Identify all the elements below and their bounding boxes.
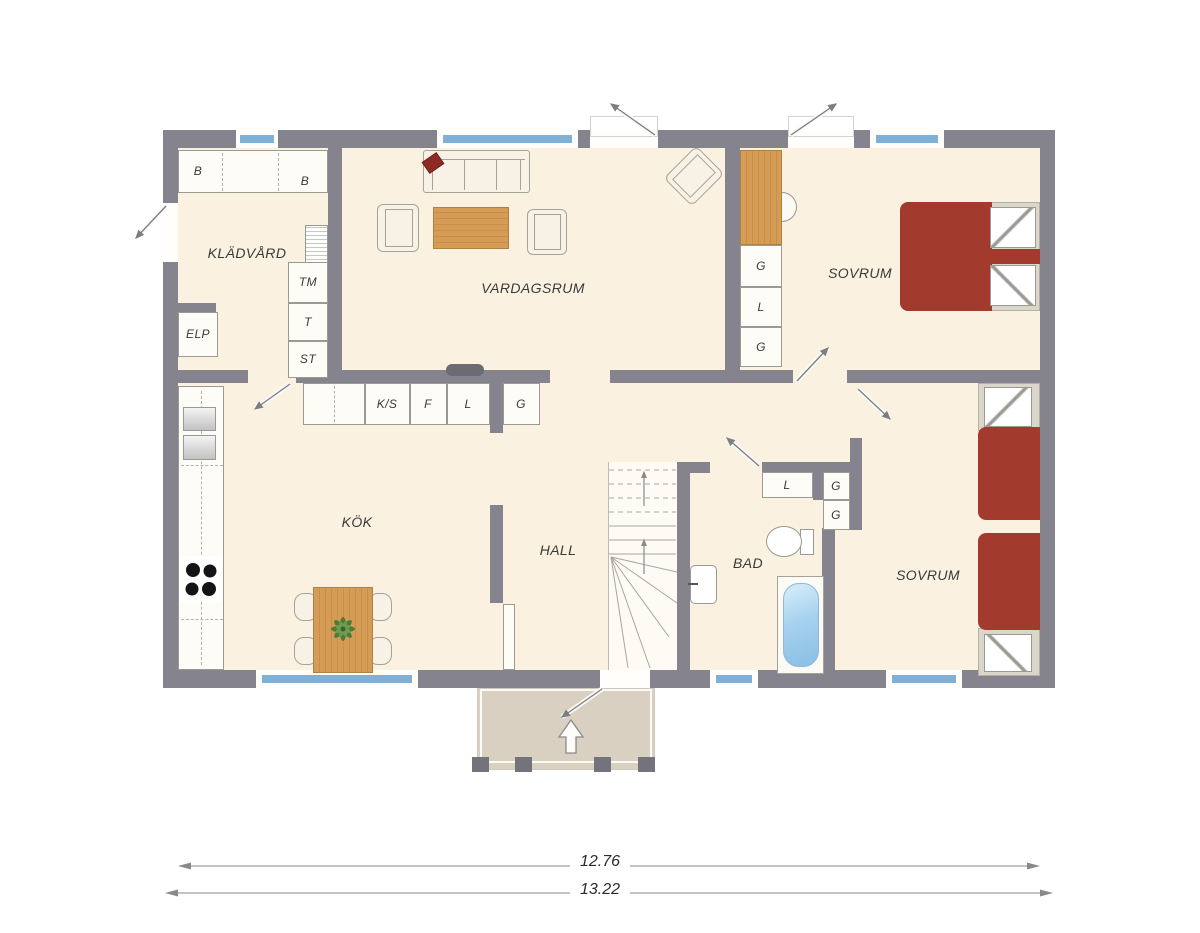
room-label-vardagsrum: VARDAGSRUM (481, 280, 585, 296)
counter-centerline (201, 391, 202, 665)
armchair (527, 209, 567, 255)
stove (180, 556, 222, 602)
toilet-tank (800, 529, 814, 555)
closet-label-l-bad: L (783, 478, 790, 492)
wall-elp-top (178, 303, 216, 312)
dining-table (313, 587, 373, 673)
bed-blanket (978, 533, 1040, 630)
porch-post (472, 757, 489, 772)
room-label-hall: HALL (540, 542, 577, 558)
tv-bench (446, 364, 484, 376)
toilet-bowl (766, 526, 802, 557)
room-label-kok: KÖK (342, 514, 373, 530)
staircase (608, 462, 677, 670)
cabinet-kitchen-plain (303, 383, 365, 425)
room-label-sovrum1: SOVRUM (828, 265, 892, 281)
closet-label-l-kok: L (464, 397, 471, 411)
kitchen-door-leaf (503, 604, 515, 670)
bathtub-water (783, 583, 819, 667)
coffee-table (433, 207, 509, 249)
window-glass (443, 135, 572, 143)
porch-post (594, 757, 611, 772)
closet-label-st: ST (300, 352, 316, 366)
window-glass (262, 675, 412, 683)
sofa-cushion-divider (496, 159, 497, 190)
closet-label-tm: TM (299, 275, 317, 289)
counter-divider (181, 465, 223, 466)
sink (690, 565, 717, 604)
dimension-inner-width: 12.76 (570, 853, 630, 871)
side-door-swing (136, 206, 166, 238)
closet-label-l1: L (757, 300, 764, 314)
wardrobe-wood (740, 150, 782, 245)
window-glass (892, 675, 956, 683)
closet-label-elp: ELP (186, 327, 210, 341)
armchair-seat (385, 209, 413, 247)
bed-pillow (984, 387, 1032, 427)
window-vardagsrum (437, 130, 578, 148)
counter-divider (181, 619, 223, 620)
closet-label-t: T (304, 315, 312, 329)
window-kladvard (236, 130, 278, 148)
wall-h-sovrum1 (847, 370, 1040, 383)
bed-pillow (984, 634, 1032, 672)
wall-stairs-bad (677, 462, 690, 670)
bed-blanket-stripe (984, 249, 1040, 264)
closet-label-f: F (424, 397, 432, 411)
closet-label-g-bad1: G (831, 479, 841, 493)
patio-door-frame-2 (788, 116, 854, 137)
window-glass (716, 675, 752, 683)
armchair (377, 204, 419, 252)
cabinet-divider (222, 153, 223, 191)
single-bed (978, 383, 1040, 520)
wall-kok-hall-top (490, 383, 503, 433)
closet-label-b2: B (301, 174, 309, 188)
wall-kladvard-right (328, 148, 342, 383)
side-door-opening (163, 203, 178, 262)
wall-outer-right (1040, 130, 1055, 688)
armchair-seat (534, 214, 561, 250)
bed-pillow (990, 265, 1036, 306)
wall-l-g-divider (813, 462, 823, 500)
window-glass (876, 135, 938, 143)
sofa-cushion-divider (464, 159, 465, 190)
entry-door-opening (600, 670, 650, 688)
sofa-backrest (428, 159, 525, 160)
closet-label-g-kok: G (516, 397, 526, 411)
porch-inner-border (480, 689, 652, 763)
room-label-kladvard: KLÄDVÅRD (208, 245, 287, 261)
sofa-armrests (432, 159, 521, 190)
floor-plan: KLÄDVÅRD VARDAGSRUM SOVRUM KÖK HALL BAD … (0, 0, 1200, 933)
closet-label-g-bad2: G (831, 508, 841, 522)
double-bed (900, 202, 1040, 311)
closet-label-g2: G (756, 340, 766, 354)
bathtub (777, 576, 824, 674)
closet-label-g1: G (756, 259, 766, 273)
porch-post (515, 757, 532, 772)
single-bed (978, 533, 1040, 676)
wall-h-corridor (610, 370, 793, 383)
wall-h-kladvard (178, 370, 248, 383)
room-label-sovrum2: SOVRUM (896, 567, 960, 583)
closet-label-ks: K/S (377, 397, 398, 411)
dimension-outer-width: 13.22 (570, 881, 630, 899)
window-glass (240, 135, 274, 143)
fridge (183, 407, 216, 431)
window-sovrum2 (886, 670, 962, 688)
wall-corridor-sovrum2 (850, 438, 862, 530)
cabinet-divider (278, 153, 279, 191)
bed-pillow (990, 207, 1036, 248)
freezer (183, 435, 216, 460)
room-label-bad: BAD (733, 555, 763, 571)
window-sovrum1 (870, 130, 944, 148)
cabinet-divider (334, 386, 335, 422)
wall-kok-hall-mid (490, 505, 503, 603)
window-bad (710, 670, 758, 688)
patio-door-frame-1 (590, 116, 658, 137)
closet-label-b1: B (194, 164, 202, 178)
bed-blanket (900, 202, 992, 311)
porch-post (638, 757, 655, 772)
entrance-porch (477, 688, 655, 770)
wall-bad-top-left (677, 462, 710, 473)
bed-blanket (978, 427, 1040, 520)
corner-armchair-seat (672, 154, 716, 198)
